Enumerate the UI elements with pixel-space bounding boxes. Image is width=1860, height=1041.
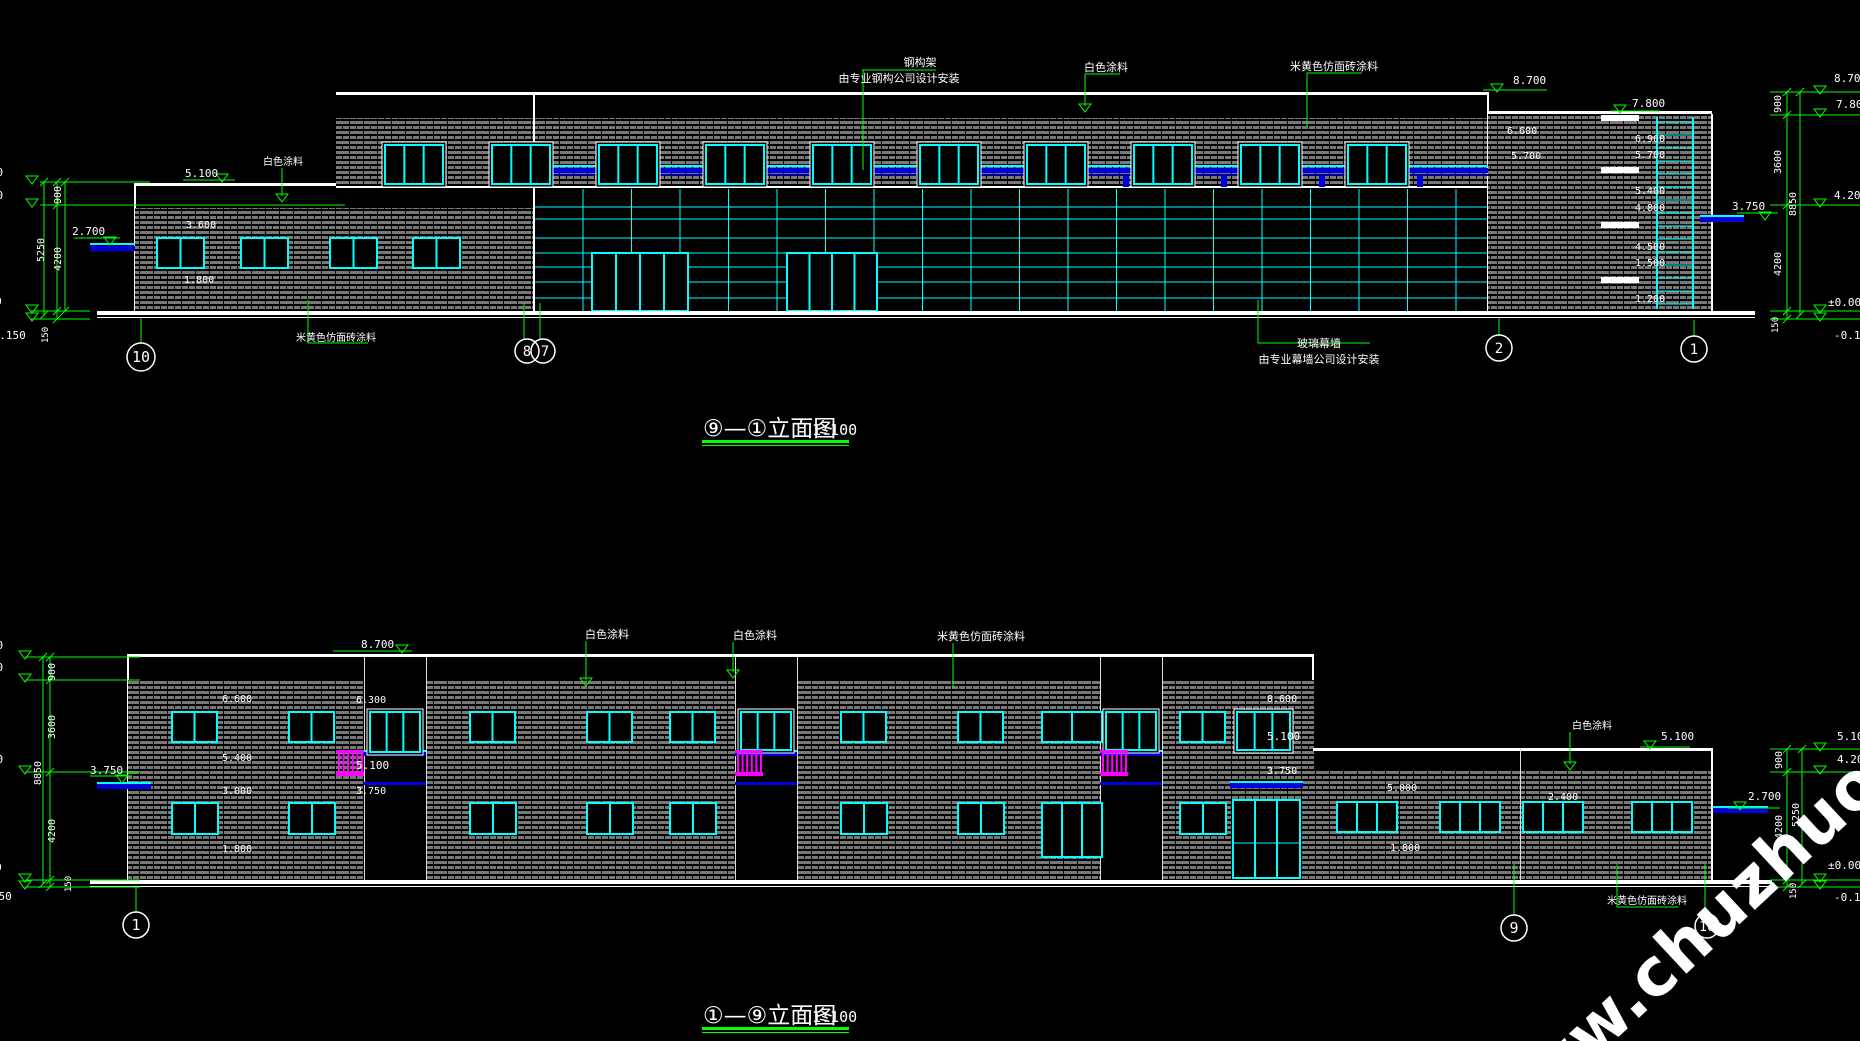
wing-parapet-line [1488,111,1712,114]
bottom-elevation: 8.700 白色涂料 白色涂料 米黄色仿面砖涂料 白色涂料 5.100 2.70… [0,627,1860,1033]
level-right: 3.750 [1732,200,1765,213]
elevation-drawing-svg: 钢构架 由专业钢构公司设计安装 白色涂料 米黄色仿面砖涂料 白色涂料 玻璃幕墙 … [0,0,1860,1041]
railing-bar [338,753,340,772]
beam-hanger [1221,176,1227,187]
left-canopy-edge [97,782,151,784]
bay-edge [797,657,798,880]
level-left: 5.100 [0,166,3,179]
railing-bottom [336,772,364,776]
railing-bar [1116,753,1118,772]
dim-text: 900 [47,663,58,681]
railing-bar [1120,753,1122,772]
right-canopy-edge [1700,215,1744,217]
dim-text: 4200 [47,819,58,843]
level-right: ±0.000 [1828,296,1860,309]
louver [1601,277,1639,283]
level-marker-triangle [19,766,31,774]
entrance-canopy [1230,783,1303,788]
window [1134,145,1192,184]
ground-line-thin [90,886,1772,887]
right-canopy [1700,217,1744,222]
dim-text: 150 [1771,317,1781,333]
window [1042,803,1102,857]
level-marker-triangle [1491,84,1503,92]
level-left: ±0.000 [0,295,2,308]
beige-tile-bottom-label: 米黄色仿面砖涂料 [296,331,376,344]
railing-bar [352,753,354,772]
entrance-door [1233,800,1300,878]
bay-floor-line [735,782,797,785]
dim-text: 4200 [53,247,64,271]
axis-bubbles-bottom: 1 9 10 [123,912,1719,941]
wall-mark: 5.700 [1511,151,1541,162]
railing-bar [755,753,757,772]
railing-top [336,750,364,753]
railing-top [1100,750,1128,753]
axis-number: 1 [1690,342,1698,358]
railing-bar [746,753,748,772]
bay-edge [735,657,736,880]
level-right: 4.200 [1834,189,1860,202]
parapet-line [336,92,1488,95]
wall-mark: 6.300 [356,695,386,706]
bottom-title-scale: 1:100 [812,1008,857,1026]
window [1241,145,1299,184]
wing-right-edge [1711,114,1713,311]
bay-edge [1162,657,1163,880]
bay-floor-line [1100,782,1162,785]
level-marker-triangle [19,651,31,659]
steel-frame-label-1: 钢构架 [904,55,937,69]
cad-canvas: 钢构架 由专业钢构公司设计安装 白色涂料 米黄色仿面砖涂料 白色涂料 玻璃幕墙 … [0,0,1860,1041]
level-5100: 5.100 [1661,730,1694,743]
wall-mark: 5.400 [1635,186,1665,197]
level-marker-triangle [1814,743,1826,751]
curtain-wall-label-2: 由专业幕墙公司设计安装 [1259,352,1380,366]
window [492,145,550,184]
window [1106,712,1156,750]
level-right: 8.700 [1834,72,1860,85]
level-right: 7.800 [1836,98,1860,111]
window [1523,802,1583,832]
wall-mark: 6.600 [1507,126,1537,137]
dim-text: 900 [1774,751,1785,769]
level-marker-triangle [26,313,38,321]
dim-text: 3600 [47,715,58,739]
wall-mark: 1.200 [1635,294,1665,305]
wall-mark: 8.600 [1267,694,1297,705]
level-marker-triangle [19,674,31,682]
recessed-bay [1100,657,1162,880]
wall-mark: 3.000 [222,786,252,797]
steel-frame-label-2: 由专业钢构公司设计安装 [839,71,960,85]
white-paint-label: 白色涂料 [585,627,629,641]
dim-text: 4200 [1773,252,1784,276]
railing-bar [347,753,349,772]
louver [1601,222,1639,228]
wing-parapet-line [1313,748,1712,751]
white-paint-label: 白色涂料 [733,628,777,642]
block-divider-line [533,92,535,311]
dim-text: 900 [53,186,64,204]
title-underline-thin [702,445,849,446]
railing-bar [1111,753,1113,772]
dim-text: 8850 [1788,192,1799,216]
bay-edge [426,657,427,880]
title-underline-thin [702,1032,849,1033]
beam-hanger [1417,176,1423,187]
louver [1601,115,1639,121]
window [1348,145,1406,184]
axis-number: 8 [523,344,531,360]
wall-mark: 6.900 [1635,134,1665,145]
axis-number: 9 [1509,919,1518,937]
window [1632,802,1692,832]
wall-mark: 5.100 [1267,730,1300,743]
level-marker-triangle [26,199,38,207]
railing-top [735,750,763,753]
title-underline [702,1027,849,1030]
level-marker-triangle [1814,313,1826,321]
railing-bar [343,753,345,772]
wing-divider [1520,748,1521,880]
railing-bar [760,753,762,772]
level-left: -0.150 [0,329,26,342]
level-left: ±0.000 [0,861,2,874]
wall-mark: 5.100 [356,759,389,772]
dim-text: 3600 [1773,150,1784,174]
wall-mark: 4.500 [1635,242,1665,253]
left-canopy [97,784,151,789]
level-5100: 5.100 [185,167,218,180]
dim-text: 5250 [36,238,47,262]
level-marker-triangle [26,305,38,313]
level-left: 4.200 [0,189,3,202]
level-marker-triangle [1814,109,1826,117]
level-marker-triangle [1814,86,1826,94]
dim-text: 150 [64,876,74,892]
level-left: -0.150 [0,890,12,903]
level-2700: 2.700 [1748,790,1781,803]
bay-floor-line [364,782,426,785]
wall-mark: 3.750 [356,786,386,797]
railing-bar [1102,753,1104,772]
top-title-scale: 1:100 [812,421,857,439]
level-8700: 8.700 [1513,74,1546,87]
axis-number: 10 [132,348,150,366]
level-7800: 7.800 [1632,97,1665,110]
wall-mark: 1.800 [1390,843,1420,854]
dim-text: 8850 [33,761,44,785]
window [599,145,657,184]
level-marker-triangle [396,645,408,653]
wall-mark: 1.800 [222,844,252,855]
level-left: 7.800 [0,661,3,674]
level-left: 8.700 [0,639,3,652]
railing-bar [737,753,739,772]
wall-mark: 5.400 [222,753,252,764]
wall-mark: 3.600 [186,220,216,231]
left-canopy-edge [90,243,135,245]
window [385,145,443,184]
ground-line-thin [97,317,1755,318]
curtain-wall-label-1: 玻璃幕墙 [1297,336,1341,350]
beige-tile-label: 米黄色仿面砖涂料 [937,629,1025,643]
window [813,145,871,184]
wall-mark: 5.000 [1387,783,1417,794]
window [1337,802,1397,832]
beam-hanger [1123,176,1129,187]
level-right: -0.150 [1834,891,1860,904]
main-parapet-line [128,654,1314,657]
railing-bottom [1100,772,1128,776]
window [1440,802,1500,832]
level-3750: 3.750 [90,764,123,777]
beam-hanger [1319,176,1325,187]
white-paint-label: 白色涂料 [1572,719,1612,732]
recessed-bay [735,657,797,880]
wall-mark: 6.600 [222,694,252,705]
white-paint-label: 白色涂料 [1084,60,1128,74]
level-marker-triangle [1814,199,1826,207]
wall-mark: 3.750 [1267,766,1297,777]
axis-number: 1 [131,916,140,934]
window [920,145,978,184]
white-paint-left-label: 白色涂料 [263,155,303,168]
level-marker-triangle [1644,741,1656,749]
top-elevation: 钢构架 由专业钢构公司设计安装 白色涂料 米黄色仿面砖涂料 白色涂料 玻璃幕墙 … [0,55,1860,446]
dim-text: 150 [41,327,51,343]
wall-mark: 5.700 [1635,150,1665,161]
level-left: 4.200 [0,753,3,766]
railing-bottom [735,772,763,776]
level-right: -0.150 [1834,329,1860,342]
level-marker-triangle [26,176,38,184]
wall-mark: 2.400 [1548,792,1578,803]
ground-line [90,880,1772,884]
dim-text: 900 [1773,95,1784,113]
title-underline [702,440,849,443]
level-left: 2.700 [72,225,105,238]
railing-bar [1125,753,1127,772]
window [1027,145,1085,184]
railing-bar [742,753,744,772]
left-canopy [90,246,135,251]
railing-bar [1107,753,1109,772]
level-right: ±0.000 [1828,859,1860,872]
level-marker-triangle [1814,305,1826,313]
wall-mark: 1.500 [1635,258,1665,269]
railing-bar [751,753,753,772]
window [741,712,791,750]
window [370,712,420,752]
entrance-canopy-edge [1230,781,1303,783]
wall-mark: 4.800 [1635,203,1665,214]
louver [1601,167,1639,173]
level-8700: 8.700 [361,638,394,651]
beige-tile-label: 米黄色仿面砖涂料 [1290,59,1378,73]
ground-line [97,311,1755,315]
wall-mark: 1.800 [184,275,214,286]
axis-number: 7 [541,344,549,360]
wing-right-edge [1711,748,1713,880]
axis-number: 2 [1495,341,1503,357]
window [706,145,764,184]
